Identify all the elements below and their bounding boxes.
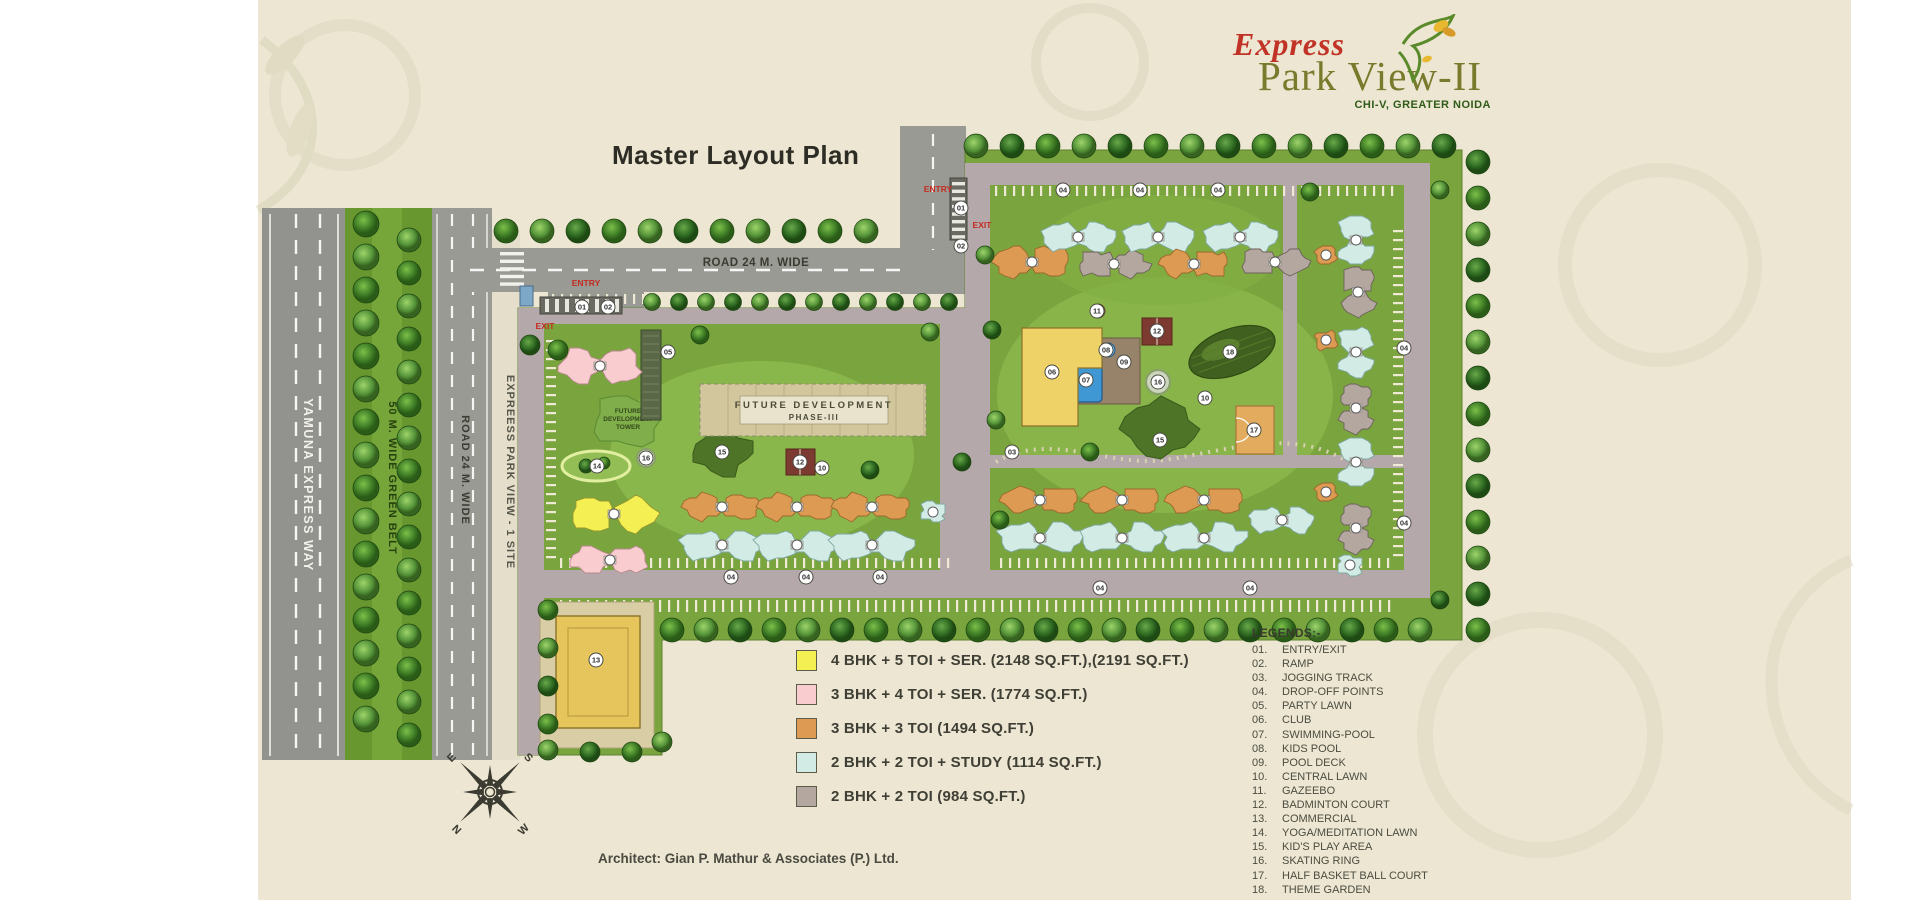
legend-item-label: BADMINTON COURT xyxy=(1282,799,1390,811)
legend-item: 11.GAZEEBO xyxy=(1252,784,1428,798)
legend-item-number: 08. xyxy=(1252,742,1282,756)
page-title: Master Layout Plan xyxy=(612,140,859,171)
tree-icon xyxy=(1288,134,1312,158)
tree-icon xyxy=(397,327,421,351)
svg-text:04: 04 xyxy=(1059,186,1068,195)
tree-icon xyxy=(1072,134,1096,158)
legend-item-number: 09. xyxy=(1252,756,1282,770)
tree-icon xyxy=(1000,618,1024,642)
svg-text:ROAD 24 M. WIDE: ROAD 24 M. WIDE xyxy=(459,415,471,525)
plan-marker-12: 12 xyxy=(1150,324,1164,338)
svg-text:YAMUNA EXPRESS WAY: YAMUNA EXPRESS WAY xyxy=(301,398,315,572)
legend-item-label: CLUB xyxy=(1282,714,1311,726)
legend-item-number: 02. xyxy=(1252,657,1282,671)
legend-item: 12.BADMINTON COURT xyxy=(1252,798,1428,812)
svg-text:16: 16 xyxy=(1154,378,1162,387)
plan-marker-16: 16 xyxy=(1151,375,1165,389)
tree-icon xyxy=(1466,258,1490,282)
unit-legend-row: 2 BHK + 2 TOI (984 SQ.FT.) xyxy=(796,779,1189,813)
tree-icon xyxy=(397,492,421,516)
legend-item-label: GAZEEBO xyxy=(1282,785,1335,797)
legends-items: 01.ENTRY/EXIT02.RAMP03.JOGGING TRACK04.D… xyxy=(1252,643,1428,897)
tree-icon xyxy=(353,607,379,633)
tree-icon xyxy=(1396,134,1420,158)
tree-icon xyxy=(353,706,379,732)
unit-legend-row: 2 BHK + 2 TOI + STUDY (1114 SQ.FT.) xyxy=(796,745,1189,779)
svg-text:10: 10 xyxy=(818,464,826,473)
tree-icon xyxy=(796,618,820,642)
tree-icon xyxy=(353,541,379,567)
svg-text:PHASE-III: PHASE-III xyxy=(789,413,839,422)
tree-icon xyxy=(991,511,1009,529)
svg-text:12: 12 xyxy=(1153,327,1161,336)
tree-icon xyxy=(752,294,769,311)
svg-text:04: 04 xyxy=(727,573,736,582)
tree-icon xyxy=(983,321,1001,339)
tree-icon xyxy=(353,409,379,435)
plan-marker-10: 10 xyxy=(1198,391,1212,405)
plan-marker-02: 02 xyxy=(954,239,968,253)
plan-marker-15: 15 xyxy=(715,445,729,459)
svg-text:01: 01 xyxy=(957,204,965,213)
tree-icon xyxy=(725,294,742,311)
legend-item-label: JOGGING TRACK xyxy=(1282,672,1373,684)
tree-icon xyxy=(538,740,558,760)
brand-logo: Express Park View-II CHI-V, GREATER NOID… xyxy=(1233,28,1513,111)
plan-marker-07: 07 xyxy=(1079,373,1093,387)
legend-item: 04.DROP-OFF POINTS xyxy=(1252,685,1428,699)
legend-item-label: COMMERCIAL xyxy=(1282,813,1357,825)
tree-icon xyxy=(397,624,421,648)
plan-marker-04: 04 xyxy=(799,570,813,584)
tree-icon xyxy=(397,459,421,483)
tree-icon xyxy=(397,657,421,681)
svg-text:14: 14 xyxy=(593,462,602,471)
tree-icon xyxy=(1466,222,1490,246)
tree-icon xyxy=(898,618,922,642)
legend-item-number: 04. xyxy=(1252,685,1282,699)
tree-icon xyxy=(861,461,879,479)
tree-icon xyxy=(652,732,672,752)
unit-color-swatch xyxy=(796,684,817,705)
svg-text:04: 04 xyxy=(1096,584,1105,593)
legend-item: 03.JOGGING TRACK xyxy=(1252,671,1428,685)
legend-item: 01.ENTRY/EXIT xyxy=(1252,643,1428,657)
tree-icon xyxy=(397,426,421,450)
tree-icon xyxy=(397,261,421,285)
plan-marker-16: 16 xyxy=(639,451,653,465)
tree-icon xyxy=(932,618,956,642)
tree-icon xyxy=(1466,294,1490,318)
tree-icon xyxy=(1301,183,1319,201)
legend-item-number: 12. xyxy=(1252,798,1282,812)
svg-text:04: 04 xyxy=(1246,584,1255,593)
tree-icon xyxy=(397,723,421,747)
tree-icon xyxy=(1466,186,1490,210)
legend-item: 14.YOGA/MEDITATION LAWN xyxy=(1252,826,1428,840)
tree-icon xyxy=(353,442,379,468)
tree-icon xyxy=(1324,134,1348,158)
tree-icon xyxy=(397,294,421,318)
legend-item: 18.THEME GARDEN xyxy=(1252,883,1428,897)
legend-item-label: RAMP xyxy=(1282,658,1314,670)
legend-item-number: 13. xyxy=(1252,812,1282,826)
svg-text:04: 04 xyxy=(1136,186,1145,195)
tree-icon xyxy=(833,294,850,311)
tree-icon xyxy=(674,219,698,243)
svg-text:FUTURE DEVELOPMENT: FUTURE DEVELOPMENT xyxy=(735,400,893,411)
plan-marker-04: 04 xyxy=(1397,341,1411,355)
svg-text:06: 06 xyxy=(1048,368,1056,377)
tree-icon xyxy=(353,343,379,369)
plan-marker-17: 17 xyxy=(1247,423,1261,437)
svg-text:TOWER: TOWER xyxy=(616,424,640,431)
tree-icon xyxy=(1034,618,1058,642)
tree-icon xyxy=(762,618,786,642)
tree-icon xyxy=(1102,618,1126,642)
tree-icon xyxy=(818,219,842,243)
legend-item-label: CENTRAL LAWN xyxy=(1282,771,1367,783)
tree-icon xyxy=(530,219,554,243)
tree-icon xyxy=(602,219,626,243)
plan-marker-01: 01 xyxy=(954,201,968,215)
plan-marker-02: 02 xyxy=(601,300,615,314)
legend-item-number: 01. xyxy=(1252,643,1282,657)
plan-marker-08: 08 xyxy=(1099,343,1113,357)
tree-icon xyxy=(622,742,642,762)
legend-item-label: DROP-OFF POINTS xyxy=(1282,686,1383,698)
tree-icon xyxy=(830,618,854,642)
tree-icon xyxy=(698,294,715,311)
plan-marker-13: 13 xyxy=(589,653,603,667)
plan-marker-14: 14 xyxy=(590,459,604,473)
tree-icon xyxy=(397,690,421,714)
tree-icon xyxy=(1170,618,1194,642)
legend-item-number: 05. xyxy=(1252,699,1282,713)
tree-icon xyxy=(353,310,379,336)
tree-icon xyxy=(1466,330,1490,354)
unit-type-legend: 4 BHK + 5 TOI + SER. (2148 SQ.FT.),(2191… xyxy=(796,643,1189,813)
tree-icon xyxy=(1144,134,1168,158)
svg-text:FUTURE: FUTURE xyxy=(615,408,642,415)
svg-text:10: 10 xyxy=(1201,394,1209,403)
tree-icon xyxy=(397,591,421,615)
tree-icon xyxy=(1252,134,1276,158)
tree-icon xyxy=(638,219,662,243)
tree-icon xyxy=(566,219,590,243)
svg-text:03: 03 xyxy=(1008,448,1016,457)
tree-icon xyxy=(548,340,568,360)
legend-item: 05.PARTY LAWN xyxy=(1252,699,1428,713)
legend-item: 06.CLUB xyxy=(1252,713,1428,727)
tree-icon xyxy=(1081,443,1099,461)
legend-item-label: KIDS POOL xyxy=(1282,743,1341,755)
tree-icon xyxy=(1432,134,1456,158)
tree-icon xyxy=(353,574,379,600)
legend-item-number: 14. xyxy=(1252,826,1282,840)
legend-item-number: 16. xyxy=(1252,854,1282,868)
tree-icon xyxy=(779,294,796,311)
legend-item-number: 03. xyxy=(1252,671,1282,685)
brand-location: CHI-V, GREATER NOIDA xyxy=(1233,100,1491,111)
tree-icon xyxy=(538,714,558,734)
legends-heading: LEGENDS:- xyxy=(1252,626,1428,640)
tree-icon xyxy=(1466,510,1490,534)
svg-text:15: 15 xyxy=(718,448,726,457)
legend-item-label: POOL DECK xyxy=(1282,757,1346,769)
legend-item: 15.KID'S PLAY AREA xyxy=(1252,840,1428,854)
legend-item: 13.COMMERCIAL xyxy=(1252,812,1428,826)
tree-icon xyxy=(1466,582,1490,606)
tree-icon xyxy=(941,294,958,311)
plan-marker-04: 04 xyxy=(1133,183,1147,197)
legend-item-number: 07. xyxy=(1252,728,1282,742)
plan-marker-11: 11 xyxy=(1090,304,1104,318)
legend-item-label: KID'S PLAY AREA xyxy=(1282,841,1372,853)
svg-text:05: 05 xyxy=(664,348,672,357)
svg-text:13: 13 xyxy=(592,656,600,665)
unit-legend-row: 4 BHK + 5 TOI + SER. (2148 SQ.FT.),(2191… xyxy=(796,643,1189,677)
tree-icon xyxy=(1466,546,1490,570)
tree-icon xyxy=(1360,134,1384,158)
tree-icon xyxy=(966,618,990,642)
architect-credit: Architect: Gian P. Mathur & Associates (… xyxy=(598,851,899,866)
tree-icon xyxy=(1180,134,1204,158)
tree-icon xyxy=(538,638,558,658)
svg-text:09: 09 xyxy=(1120,358,1128,367)
legend-item: 07.SWIMMING-POOL xyxy=(1252,728,1428,742)
svg-text:15: 15 xyxy=(1156,436,1164,445)
plan-marker-18: 18 xyxy=(1223,345,1237,359)
plan-marker-04: 04 xyxy=(724,570,738,584)
legend-item-number: 10. xyxy=(1252,770,1282,784)
tree-icon xyxy=(1466,618,1490,642)
unit-color-swatch xyxy=(796,752,817,773)
legend-item-label: THEME GARDEN xyxy=(1282,884,1371,896)
tree-icon xyxy=(353,211,379,237)
plan-marker-09: 09 xyxy=(1117,355,1131,369)
unit-legend-label: 2 BHK + 2 TOI + STUDY (1114 SQ.FT.) xyxy=(831,754,1102,771)
tree-icon xyxy=(397,360,421,384)
svg-text:ENTRY: ENTRY xyxy=(572,278,601,288)
legend-item-number: 17. xyxy=(1252,869,1282,883)
tree-icon xyxy=(921,323,939,341)
plan-marker-04: 04 xyxy=(1397,516,1411,530)
leaf-butterfly-icon xyxy=(1383,14,1473,88)
tree-icon xyxy=(1431,181,1449,199)
svg-text:04: 04 xyxy=(1400,519,1409,528)
plan-marker-04: 04 xyxy=(1211,183,1225,197)
svg-text:50 M. WIDE GREEN BELT: 50 M. WIDE GREEN BELT xyxy=(386,401,398,554)
tree-icon xyxy=(538,600,558,620)
legend-item-number: 15. xyxy=(1252,840,1282,854)
svg-text:EXPREESS PARK VIEW - 1 SITE: EXPREESS PARK VIEW - 1 SITE xyxy=(504,375,516,569)
svg-text:11: 11 xyxy=(1093,307,1101,316)
tree-icon xyxy=(353,277,379,303)
tree-icon xyxy=(1136,618,1160,642)
tree-icon xyxy=(887,294,904,311)
legend-item: 16.SKATING RING xyxy=(1252,854,1428,868)
tree-icon xyxy=(353,475,379,501)
tree-icon xyxy=(1216,134,1240,158)
tree-icon xyxy=(397,525,421,549)
tree-icon xyxy=(1204,618,1228,642)
tree-icon xyxy=(1466,474,1490,498)
svg-text:02: 02 xyxy=(957,242,965,251)
tree-icon xyxy=(1036,134,1060,158)
tree-icon xyxy=(397,558,421,582)
legend-item-label: SWIMMING-POOL xyxy=(1282,729,1375,741)
svg-text:04: 04 xyxy=(1214,186,1223,195)
tree-icon xyxy=(1000,134,1024,158)
tree-icon xyxy=(694,618,718,642)
legend-item: 10.CENTRAL LAWN xyxy=(1252,770,1428,784)
unit-legend-label: 3 BHK + 4 TOI + SER. (1774 SQ.FT.) xyxy=(831,686,1088,703)
plan-marker-04: 04 xyxy=(1056,183,1070,197)
plan-marker-12: 12 xyxy=(793,455,807,469)
svg-text:16: 16 xyxy=(642,454,650,463)
tree-icon xyxy=(494,219,518,243)
tree-icon xyxy=(397,393,421,417)
unit-color-swatch xyxy=(796,650,817,671)
plan-marker-04: 04 xyxy=(1093,581,1107,595)
master-plan-page: FUTURE DEVELOPMENTPHASE-IIIFUTUREDEVELOP… xyxy=(0,0,1920,900)
plan-marker-01: 01 xyxy=(575,300,589,314)
tree-icon xyxy=(746,219,770,243)
svg-text:ROAD 24 M. WIDE: ROAD 24 M. WIDE xyxy=(703,257,810,269)
legend-item-number: 06. xyxy=(1252,713,1282,727)
tree-icon xyxy=(976,246,994,264)
svg-text:01: 01 xyxy=(578,303,586,312)
tree-icon xyxy=(580,742,600,762)
tree-icon xyxy=(397,228,421,252)
tree-icon xyxy=(1466,438,1490,462)
tree-icon xyxy=(671,294,688,311)
plan-marker-10: 10 xyxy=(815,461,829,475)
legend-item: 08.KIDS POOL xyxy=(1252,742,1428,756)
tree-icon xyxy=(644,294,661,311)
unit-legend-row: 3 BHK + 4 TOI + SER. (1774 SQ.FT.) xyxy=(796,677,1189,711)
tree-icon xyxy=(728,618,752,642)
tree-icon xyxy=(1431,591,1449,609)
tree-icon xyxy=(964,134,988,158)
svg-text:04: 04 xyxy=(876,573,885,582)
svg-text:18: 18 xyxy=(1226,348,1234,357)
legend-item: 17.HALF BASKET BALL COURT xyxy=(1252,869,1428,883)
legend-item: 09.POOL DECK xyxy=(1252,756,1428,770)
legend-item-label: SKATING RING xyxy=(1282,855,1360,867)
unit-color-swatch xyxy=(796,718,817,739)
unit-legend-label: 2 BHK + 2 TOI (984 SQ.FT.) xyxy=(831,788,1026,805)
tree-icon xyxy=(691,326,709,344)
unit-color-swatch xyxy=(796,786,817,807)
unit-legend-row: 3 BHK + 3 TOI (1494 SQ.FT.) xyxy=(796,711,1189,745)
unit-legend-label: 4 BHK + 5 TOI + SER. (2148 SQ.FT.),(2191… xyxy=(831,652,1189,669)
svg-text:12: 12 xyxy=(796,458,804,467)
svg-text:08: 08 xyxy=(1102,346,1110,355)
unit-legend-label: 3 BHK + 3 TOI (1494 SQ.FT.) xyxy=(831,720,1034,737)
tree-icon xyxy=(782,219,806,243)
plan-marker-03: 03 xyxy=(1005,445,1019,459)
tree-icon xyxy=(710,219,734,243)
svg-text:17: 17 xyxy=(1250,426,1258,435)
tree-icon xyxy=(660,618,684,642)
plan-marker-15: 15 xyxy=(1153,433,1167,447)
legend-item: 02.RAMP xyxy=(1252,657,1428,671)
tree-icon xyxy=(538,676,558,696)
svg-text:04: 04 xyxy=(802,573,811,582)
tree-icon xyxy=(987,411,1005,429)
tree-icon xyxy=(353,244,379,270)
tree-icon xyxy=(1466,366,1490,390)
tree-icon xyxy=(1466,150,1490,174)
tree-icon xyxy=(864,618,888,642)
legends-list: LEGENDS:- 01.ENTRY/EXIT02.RAMP03.JOGGING… xyxy=(1252,626,1428,897)
legend-item-label: ENTRY/EXIT xyxy=(1282,644,1347,656)
svg-text:EXIT: EXIT xyxy=(973,220,993,230)
tree-icon xyxy=(1108,134,1132,158)
legend-item-number: 18. xyxy=(1252,883,1282,897)
legend-item-label: HALF BASKET BALL COURT xyxy=(1282,870,1428,882)
tree-icon xyxy=(353,508,379,534)
tree-icon xyxy=(1466,402,1490,426)
legend-item-label: PARTY LAWN xyxy=(1282,700,1352,712)
legend-item-number: 11. xyxy=(1252,784,1282,798)
tree-icon xyxy=(806,294,823,311)
tree-icon xyxy=(914,294,931,311)
plan-marker-04: 04 xyxy=(1243,581,1257,595)
svg-text:07: 07 xyxy=(1082,376,1090,385)
tree-icon xyxy=(854,219,878,243)
tree-icon xyxy=(860,294,877,311)
svg-text:04: 04 xyxy=(1400,344,1409,353)
tree-icon xyxy=(1068,618,1092,642)
tree-icon xyxy=(953,453,971,471)
svg-text:ENTRY: ENTRY xyxy=(924,184,953,194)
svg-text:02: 02 xyxy=(604,303,612,312)
tree-icon xyxy=(353,673,379,699)
plan-marker-04: 04 xyxy=(873,570,887,584)
tree-icon xyxy=(353,640,379,666)
plan-marker-05: 05 xyxy=(661,345,675,359)
tree-icon xyxy=(520,335,540,355)
tree-icon xyxy=(353,376,379,402)
svg-text:EXIT: EXIT xyxy=(536,321,556,331)
plan-marker-06: 06 xyxy=(1045,365,1059,379)
legend-item-label: YOGA/MEDITATION LAWN xyxy=(1282,827,1417,839)
